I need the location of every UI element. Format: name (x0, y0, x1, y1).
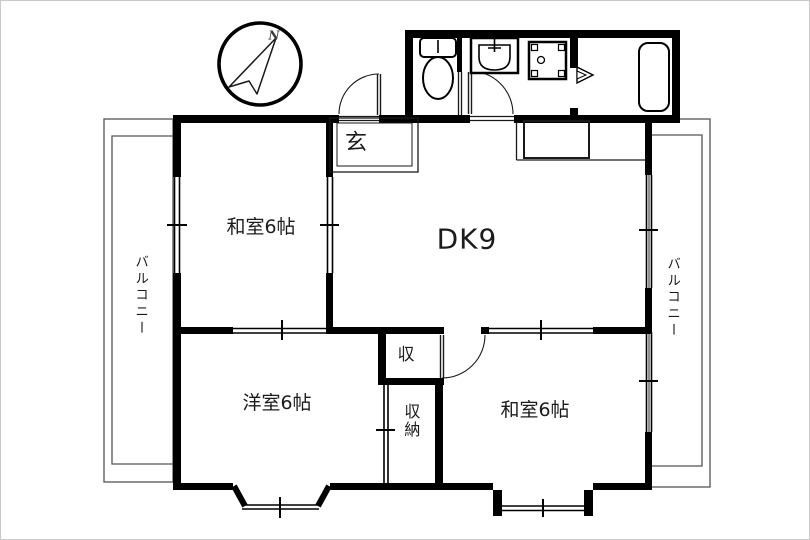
bay-window-left-walls (234, 486, 329, 506)
room-label-balcony-right: バルコニー (665, 257, 679, 340)
floor-plan: N 玄 DK9 和室6帖 洋室6帖 和室6帖 収 収納 バルコニー バルコニー (0, 0, 810, 540)
compass-icon (219, 23, 301, 105)
toilet-icon (420, 38, 456, 99)
room-label-japanese-room-bottom: 和室6帖 (500, 401, 569, 421)
washroom-door (469, 71, 514, 114)
bath-folding-door-icon (577, 67, 593, 83)
room-label-closet-tall: 収納 (402, 403, 419, 439)
entrance-door (339, 74, 381, 115)
bathtub-icon (639, 43, 669, 111)
japanese-room-bottom-door (441, 335, 486, 378)
room-label-japanese-room-top: 和室6帖 (226, 218, 295, 238)
room-label-closet-small: 収 (398, 347, 415, 365)
room-label-balcony-left: バルコニー (133, 255, 147, 338)
washing-machine-pan-icon (529, 42, 566, 79)
room-label-entrance: 玄 (345, 131, 367, 154)
floor-plan-linework (0, 0, 810, 540)
washbasin-icon (471, 38, 518, 73)
compass-north-label: N (269, 30, 280, 43)
room-label-western-room: 洋室6帖 (242, 394, 311, 414)
room-label-dk: DK9 (437, 224, 498, 253)
